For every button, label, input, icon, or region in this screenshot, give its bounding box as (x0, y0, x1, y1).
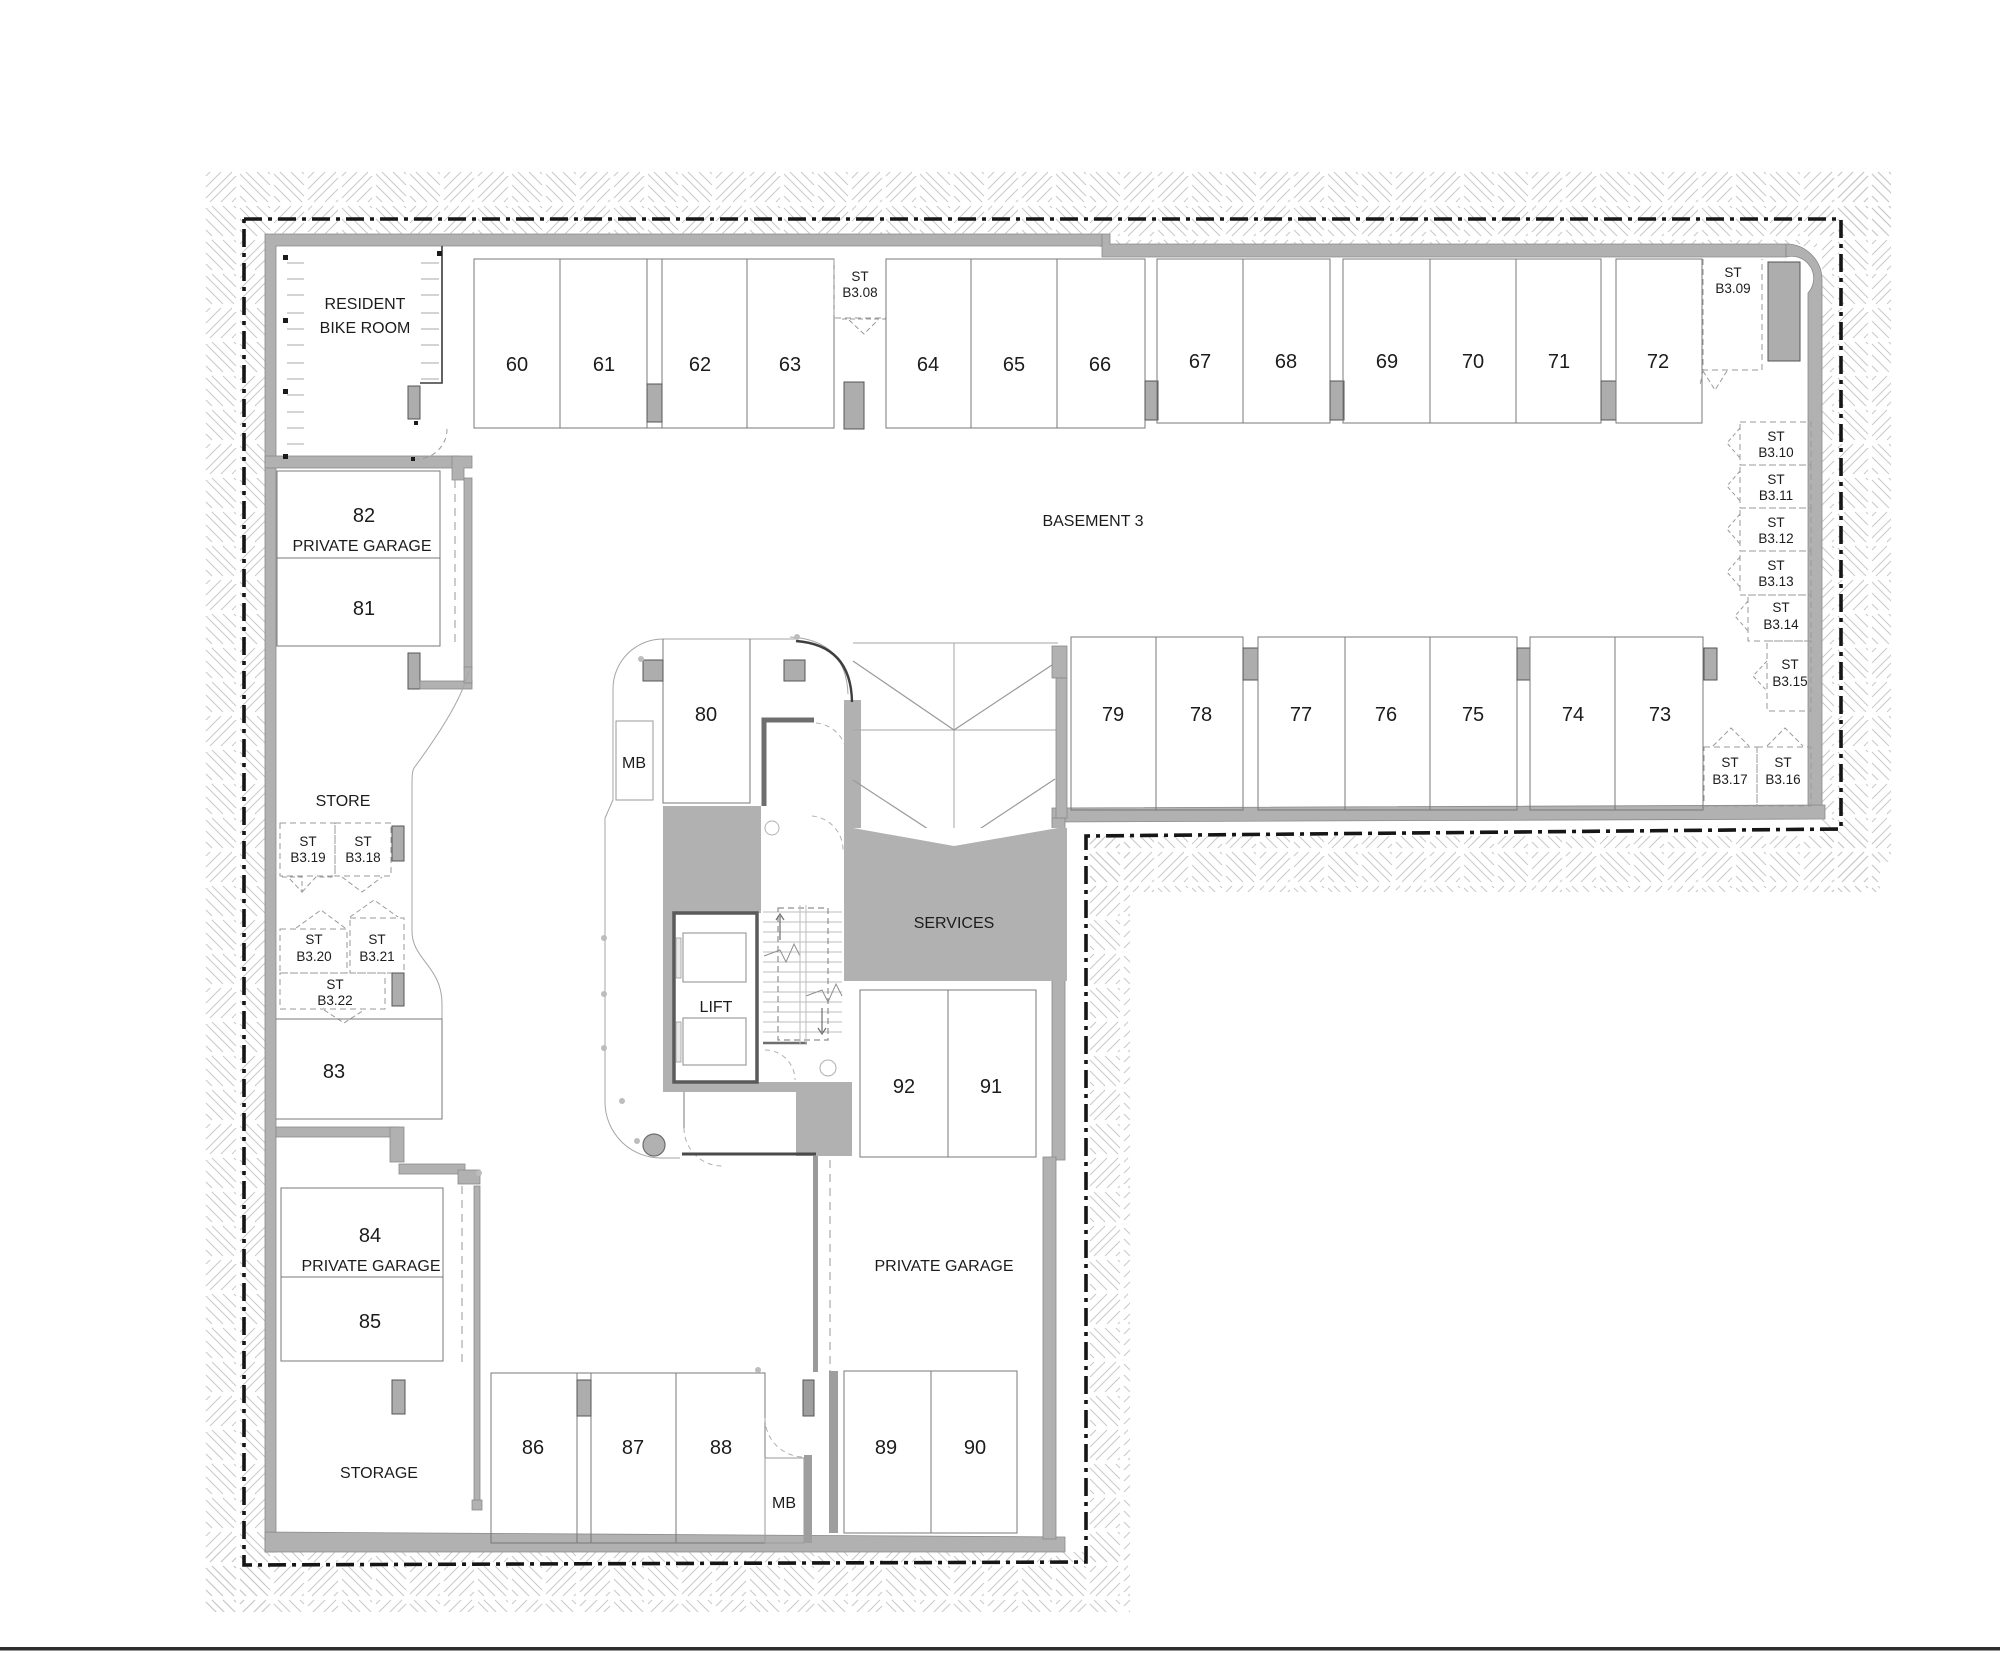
svg-text:ST: ST (1724, 265, 1741, 280)
svg-text:B3.13: B3.13 (1758, 574, 1793, 589)
svg-text:ST: ST (851, 269, 868, 284)
svg-text:73: 73 (1649, 704, 1671, 726)
svg-text:PRIVATE GARAGE: PRIVATE GARAGE (293, 538, 432, 555)
svg-text:B3.20: B3.20 (296, 949, 331, 964)
svg-text:75: 75 (1462, 704, 1484, 726)
svg-text:61: 61 (593, 354, 615, 376)
svg-text:76: 76 (1375, 704, 1397, 726)
svg-text:64: 64 (917, 354, 939, 376)
svg-text:ST: ST (326, 977, 343, 992)
svg-text:81: 81 (353, 598, 375, 620)
svg-text:ST: ST (1767, 515, 1784, 530)
svg-text:67: 67 (1189, 351, 1211, 373)
svg-text:60: 60 (506, 354, 528, 376)
svg-text:B3.21: B3.21 (359, 949, 394, 964)
svg-text:65: 65 (1003, 354, 1025, 376)
svg-text:B3.19: B3.19 (290, 850, 325, 865)
svg-text:85: 85 (359, 1311, 381, 1333)
svg-text:ST: ST (305, 932, 322, 947)
svg-text:B3.08: B3.08 (842, 285, 877, 300)
svg-text:B3.15: B3.15 (1772, 674, 1807, 689)
svg-text:77: 77 (1290, 704, 1312, 726)
svg-text:BIKE ROOM: BIKE ROOM (320, 320, 411, 337)
svg-text:78: 78 (1190, 704, 1212, 726)
svg-text:B3.14: B3.14 (1763, 617, 1799, 632)
svg-text:ST: ST (1721, 755, 1738, 770)
svg-text:74: 74 (1562, 704, 1584, 726)
svg-text:89: 89 (875, 1437, 897, 1459)
svg-text:ST: ST (354, 834, 371, 849)
svg-text:B3.12: B3.12 (1758, 531, 1793, 546)
svg-text:62: 62 (689, 354, 711, 376)
svg-text:PRIVATE GARAGE: PRIVATE GARAGE (875, 1258, 1014, 1275)
svg-text:LIFT: LIFT (700, 999, 733, 1016)
svg-text:B3.09: B3.09 (1715, 281, 1750, 296)
svg-text:82: 82 (353, 505, 375, 527)
svg-text:66: 66 (1089, 354, 1111, 376)
svg-text:91: 91 (980, 1076, 1002, 1098)
svg-text:70: 70 (1462, 351, 1484, 373)
svg-text:PRIVATE GARAGE: PRIVATE GARAGE (302, 1258, 441, 1275)
svg-text:69: 69 (1376, 351, 1398, 373)
svg-text:92: 92 (893, 1076, 915, 1098)
svg-text:87: 87 (622, 1437, 644, 1459)
svg-text:86: 86 (522, 1437, 544, 1459)
svg-text:80: 80 (695, 704, 717, 726)
svg-text:MB: MB (622, 755, 646, 772)
svg-text:STORE: STORE (316, 793, 371, 810)
svg-text:79: 79 (1102, 704, 1124, 726)
svg-text:B3.17: B3.17 (1712, 772, 1747, 787)
svg-text:72: 72 (1647, 351, 1669, 373)
svg-text:B3.10: B3.10 (1758, 445, 1793, 460)
svg-text:71: 71 (1548, 351, 1570, 373)
svg-text:ST: ST (1781, 657, 1798, 672)
svg-text:RESIDENT: RESIDENT (325, 296, 406, 313)
svg-text:90: 90 (964, 1437, 986, 1459)
svg-text:ST: ST (1767, 558, 1784, 573)
svg-text:ST: ST (368, 932, 385, 947)
svg-text:B3.18: B3.18 (345, 850, 380, 865)
svg-text:STORAGE: STORAGE (340, 1465, 418, 1482)
svg-text:B3.16: B3.16 (1765, 772, 1800, 787)
svg-text:BASEMENT 3: BASEMENT 3 (1042, 513, 1143, 530)
svg-text:84: 84 (359, 1225, 381, 1247)
svg-text:SERVICES: SERVICES (914, 915, 995, 932)
svg-text:ST: ST (299, 834, 316, 849)
svg-text:ST: ST (1774, 755, 1791, 770)
svg-text:63: 63 (779, 354, 801, 376)
svg-text:ST: ST (1767, 472, 1784, 487)
svg-text:B3.22: B3.22 (317, 993, 352, 1008)
svg-text:ST: ST (1767, 429, 1784, 444)
svg-text:B3.11: B3.11 (1759, 488, 1793, 503)
svg-text:68: 68 (1275, 351, 1297, 373)
svg-text:88: 88 (710, 1437, 732, 1459)
svg-text:MB: MB (772, 1495, 796, 1512)
svg-text:ST: ST (1772, 600, 1789, 615)
svg-text:83: 83 (323, 1061, 345, 1083)
